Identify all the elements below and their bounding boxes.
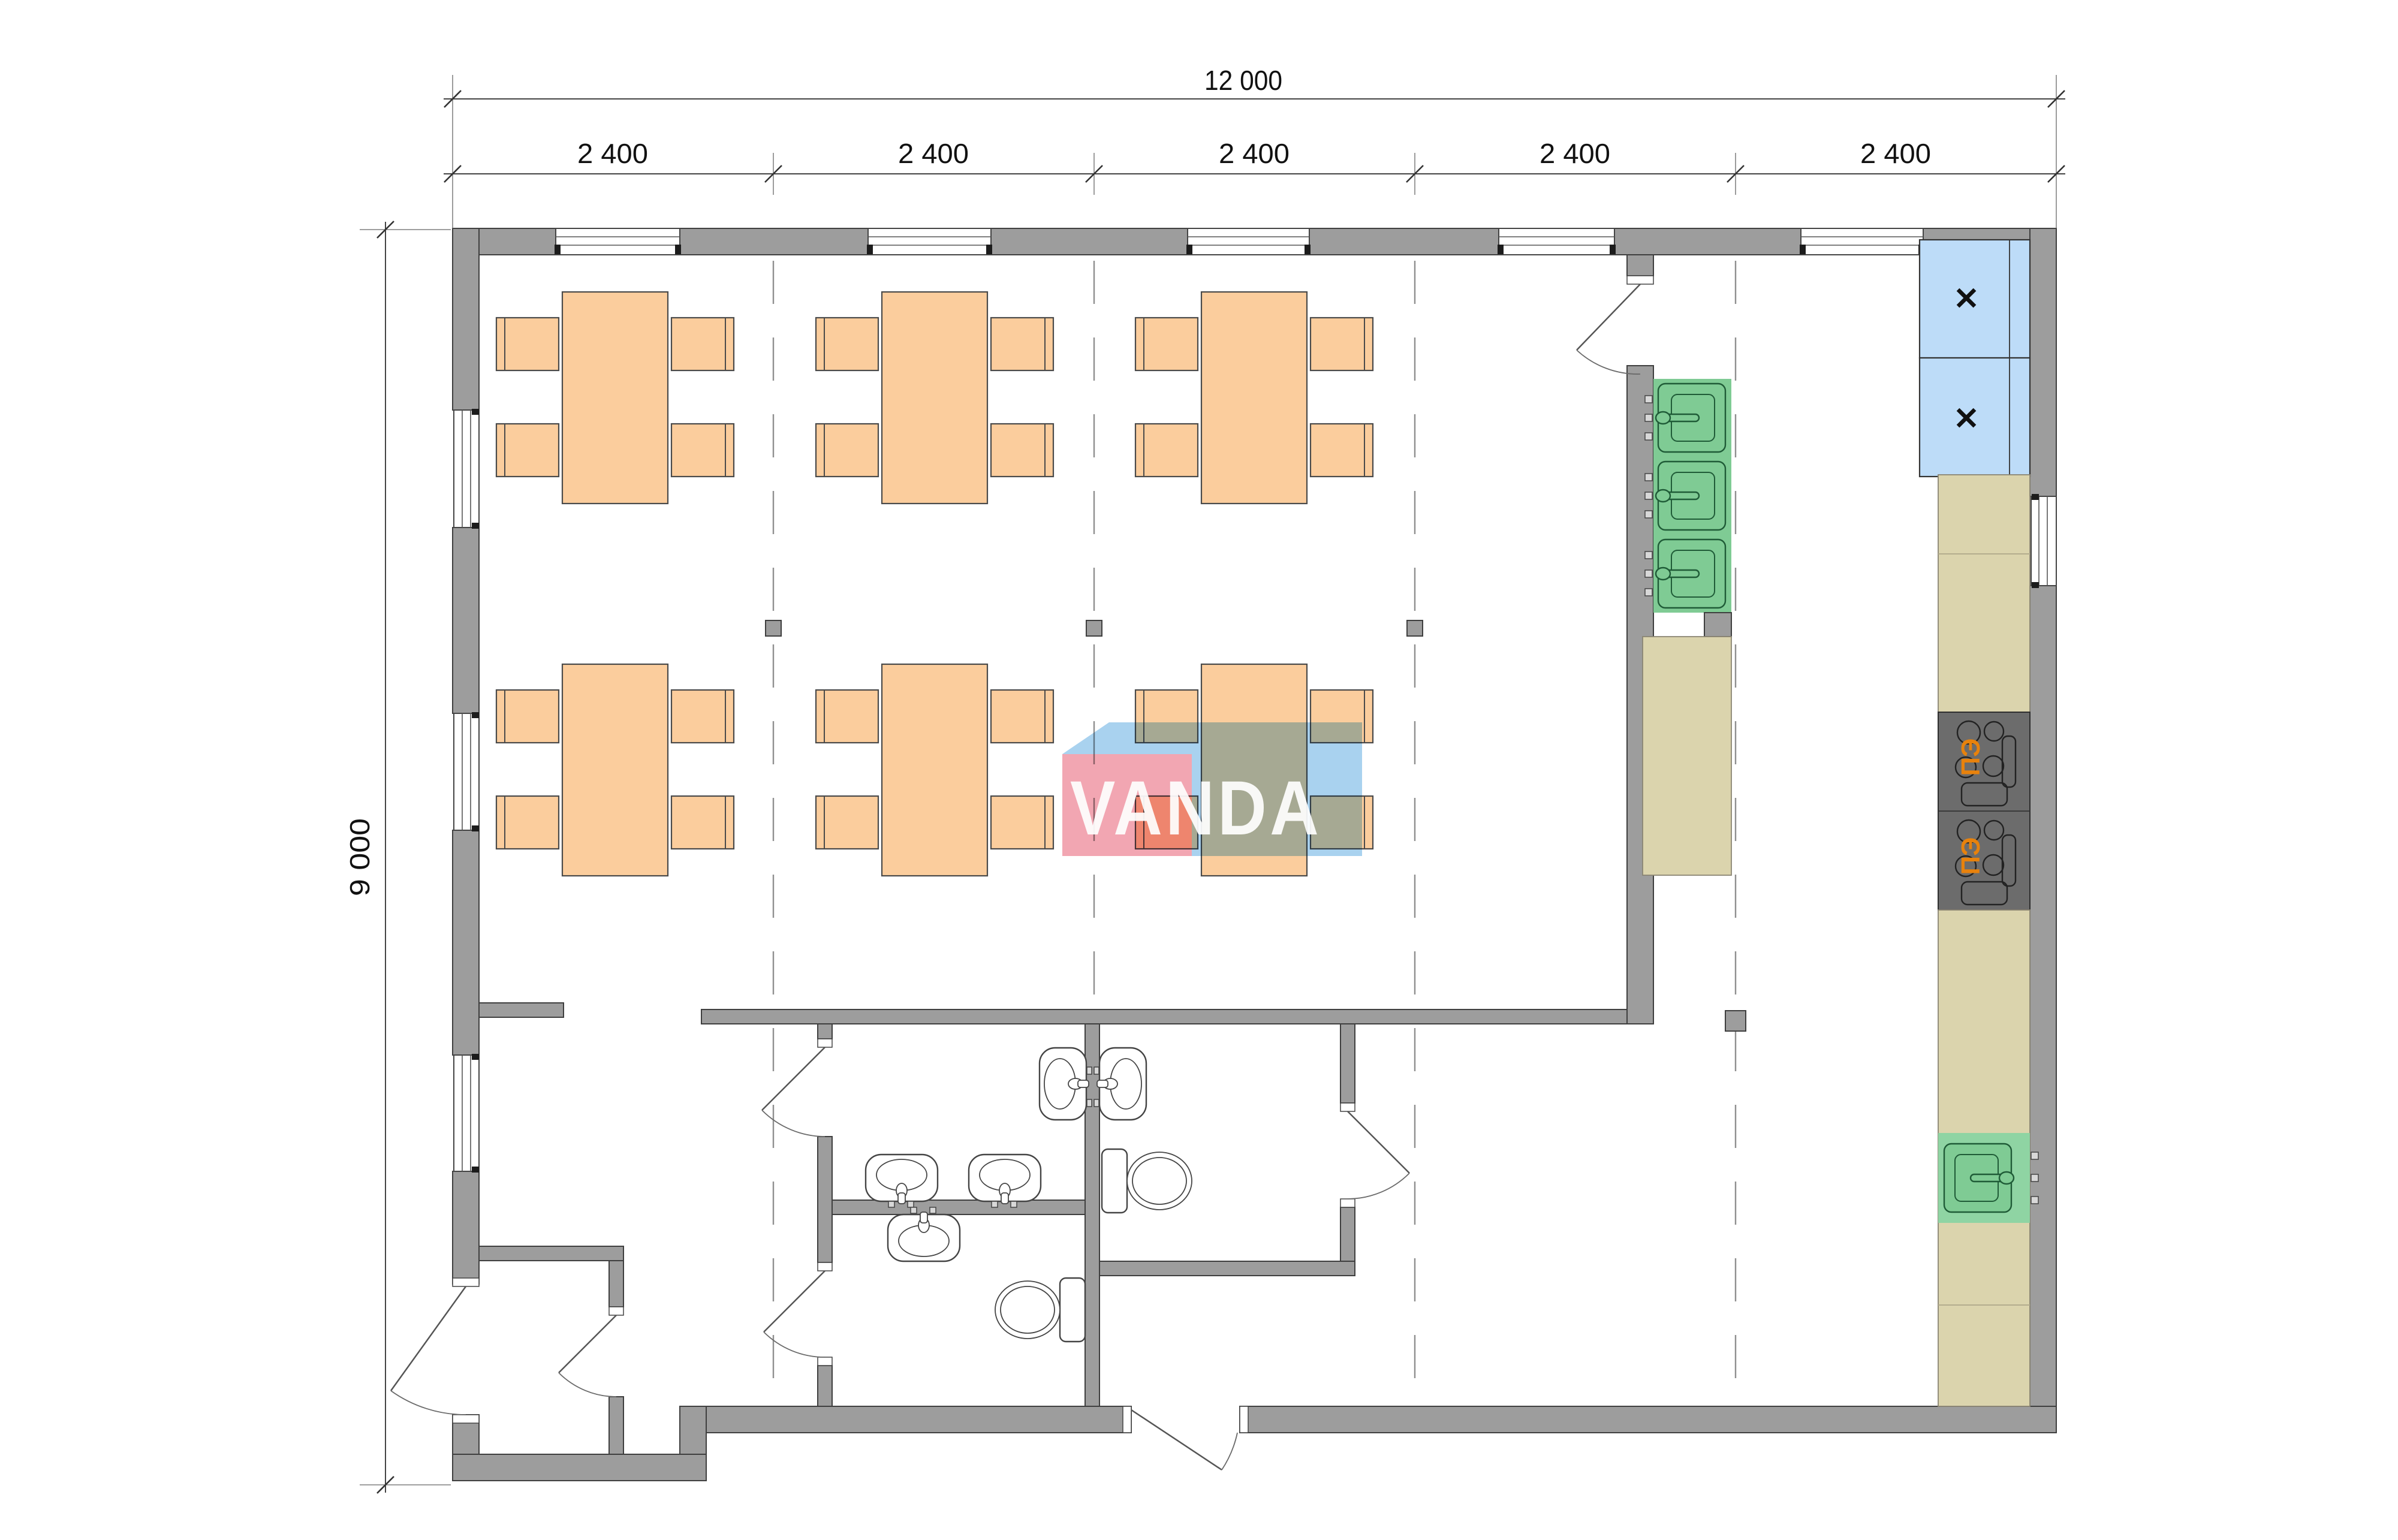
wall-segment — [479, 1246, 623, 1261]
fridge-x-mark: ✕ — [1953, 402, 1980, 436]
wall-segment — [453, 1454, 706, 1481]
wall-segment — [818, 1366, 832, 1406]
window — [454, 409, 479, 529]
window — [1186, 228, 1311, 255]
wall-segment — [453, 1171, 479, 1284]
window — [2031, 494, 2056, 588]
kitchen-sink — [1656, 384, 1725, 452]
wall-stub — [1704, 613, 1731, 637]
wall-segment — [2030, 228, 2056, 496]
washbasin — [888, 1212, 960, 1261]
sink-bank — [1645, 379, 1731, 613]
dimension-module-label: 2 400 — [1540, 138, 1610, 169]
wall-segment — [453, 528, 479, 713]
vanda-watermark: VANDA — [1062, 722, 1362, 856]
wall-segment — [453, 228, 479, 410]
door-vestibule — [559, 1307, 623, 1397]
bathroom-area — [866, 1048, 1192, 1342]
floor-plan-canvas: ✕ ✕ ПЭ ПЭ — [0, 0, 2398, 1540]
stove-label: ПЭ — [1956, 837, 1986, 875]
wall-segment — [680, 228, 868, 255]
dining-table-set — [816, 664, 1053, 876]
dimension-total-label: 12 000 — [1204, 65, 1282, 96]
wall-segment — [609, 1397, 623, 1454]
wall-segment — [1627, 255, 1653, 276]
column — [1086, 620, 1102, 636]
wall-segment — [1099, 1261, 1355, 1276]
wall-segment — [479, 1003, 564, 1017]
dining-table-set — [496, 664, 734, 876]
column — [1407, 620, 1423, 636]
column — [766, 620, 781, 636]
wall-segment — [1309, 228, 1499, 255]
dining-table-set — [1135, 292, 1373, 504]
window — [454, 1054, 479, 1173]
column — [1725, 1011, 1746, 1031]
dimension-module-label: 2 400 — [1860, 138, 1931, 169]
door-washroom-1 — [762, 1039, 832, 1137]
window — [1498, 228, 1616, 255]
wall-segment — [818, 1024, 832, 1039]
wall-segment — [453, 830, 479, 1055]
dimension-module-label: 2 400 — [577, 138, 648, 169]
window — [1800, 228, 1924, 255]
watermark-text: VANDA — [1070, 766, 1322, 851]
toilet — [1102, 1149, 1192, 1213]
washbasin — [1040, 1048, 1089, 1120]
wall-segment — [2030, 586, 2056, 1433]
kitchen-counter — [1938, 475, 2030, 712]
wall-segment — [701, 1009, 1627, 1024]
electric-stove: ПЭ ПЭ — [1938, 712, 2030, 910]
dimension-height-label: 9 000 — [344, 818, 375, 896]
window — [867, 228, 992, 255]
door-main-entrance — [1123, 1406, 1248, 1470]
wall-segment — [1614, 228, 1801, 255]
toilet — [995, 1278, 1085, 1342]
kitchen-sink — [1944, 1144, 2014, 1212]
door-kitchen — [1577, 276, 1653, 374]
wall-segment — [609, 1261, 623, 1307]
dimension-module-label: 2 400 — [1219, 138, 1290, 169]
window — [454, 712, 479, 831]
washbasin — [1097, 1048, 1146, 1120]
refrigerator: ✕ — [1920, 358, 2030, 477]
door-washroom-3 — [1340, 1103, 1409, 1207]
washbasin — [969, 1155, 1041, 1204]
dimension-module-label: 2 400 — [898, 138, 969, 169]
door-side-entrance — [391, 1278, 479, 1423]
wall-segment — [991, 228, 1188, 255]
dining-table-set — [816, 292, 1053, 504]
wall-segment — [706, 1406, 1131, 1433]
stove-label: ПЭ — [1956, 739, 1986, 776]
serving-counter — [1643, 637, 1731, 875]
floor-plan-svg: ✕ ✕ ПЭ ПЭ — [0, 0, 2398, 1540]
wall-segment — [1340, 1024, 1355, 1103]
dining-table-set — [496, 292, 734, 504]
wall-segment — [1240, 1406, 2056, 1433]
wall-segment — [818, 1137, 832, 1262]
refrigerator: ✕ — [1920, 240, 2030, 358]
kitchen-area: ✕ ✕ ПЭ ПЭ — [1643, 240, 2038, 1406]
kitchen-sink — [1656, 462, 1725, 530]
washbasin — [866, 1155, 938, 1204]
fridge-x-mark: ✕ — [1953, 282, 1980, 317]
wall-segment — [832, 1200, 1085, 1214]
window — [555, 228, 681, 255]
kitchen-sink — [1656, 540, 1725, 608]
